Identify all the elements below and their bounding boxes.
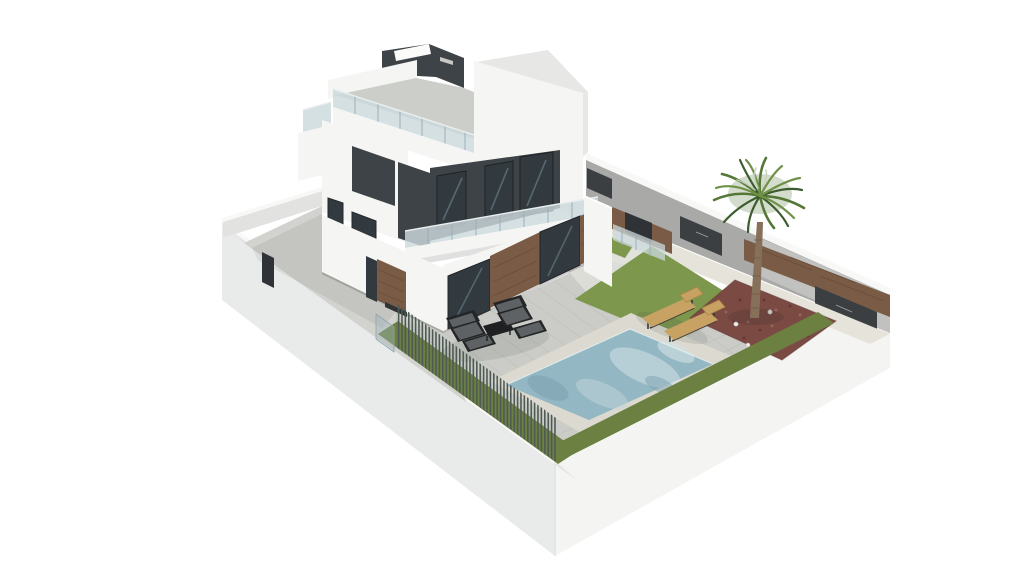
courtyard-door — [262, 252, 274, 288]
render-canvas — [0, 0, 1024, 577]
entry-parapet-pillar — [584, 196, 612, 287]
villa-render — [0, 0, 1024, 577]
tower-side-edge — [583, 92, 588, 157]
